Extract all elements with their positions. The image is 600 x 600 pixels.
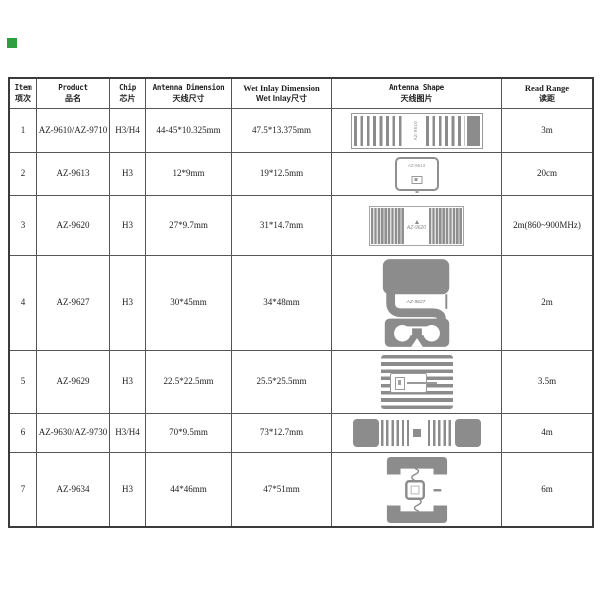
cell-antenna-shape: AZ-9620 [332,196,502,256]
dipole-chip-area [409,420,425,446]
cell-product: AZ-9634 [37,453,110,526]
product-spec-table: Item 项次 Product 品名 Chip 芯片 Antenna Dimen… [8,77,594,528]
cell-chip: H3 [110,196,146,256]
inlay-chip-area: AZ-9610 [405,116,426,146]
header-wet-inlay-dimension-en: Wet Inlay Dimension [243,83,320,94]
cell-item: 3 [10,196,37,256]
cell-wet-inlay-dimension: 47.5*13.375mm [232,109,332,153]
antenna-shape-small-rounded-tag: AZ-9613 [395,157,439,191]
dipole-left-pad [353,419,379,447]
cell-antenna-shape [332,351,502,414]
cell-read-range: 2m [502,256,592,351]
dipole-meander [381,420,453,446]
cell-read-range: 2m(860~900MHz) [502,196,592,256]
cell-product: AZ-9613 [37,153,110,196]
inlay-end-block [467,116,480,146]
header-wet-inlay-dimension: Wet Inlay Dimension Wet Inlay尺寸 [232,79,332,109]
chip-block [412,328,422,336]
header-item: Item 项次 [10,79,37,109]
header-read-range: Read Range 读距 [502,79,592,109]
chip-block [413,429,421,437]
antenna-shape-striped-dipole-inlay: AZ-9610 [351,113,483,149]
antenna-shape-dense-striped-rectangle: AZ-9620 [369,206,464,246]
striped-left [371,208,404,244]
chip-window [390,373,427,393]
chip-connector [407,382,437,384]
cell-antenna-shape: AZ-9627 [332,256,502,351]
header-product-en: Product [58,83,88,92]
header-antenna-shape: Antenna Shape 天线图片 [332,79,502,109]
header-chip-zh: 芯片 [120,94,136,104]
header-antenna-shape-zh: 天线图片 [401,94,433,104]
chip-outline [406,481,423,498]
tag-chip-icon [411,176,422,184]
cell-antenna-shape [332,453,502,526]
cell-item: 6 [10,414,37,453]
header-product: Product 品名 [37,79,110,109]
cell-antenna-dimension: 70*9.5mm [146,414,232,453]
green-marker [7,38,17,48]
inlay-left-bars [354,116,405,146]
striped-right [429,208,462,244]
header-read-range-en: Read Range [525,83,569,94]
cell-chip: H3/H4 [110,109,146,153]
cell-chip: H3 [110,351,146,414]
cell-product: AZ-9630/AZ-9730 [37,414,110,453]
triangle-mark-icon [415,220,419,224]
cell-read-range: 4m [502,414,592,453]
cell-wet-inlay-dimension: 31*14.7mm [232,196,332,256]
cell-product: AZ-9627 [37,256,110,351]
header-chip-en: Chip [119,83,136,92]
header-wet-inlay-dimension-zh: Wet Inlay尺寸 [256,94,307,104]
cell-read-range: 20cm [502,153,592,196]
cell-antenna-shape: AZ-9610 [332,109,502,153]
cell-item: 4 [10,256,37,351]
cell-wet-inlay-dimension: 47*51mm [232,453,332,526]
cell-product: AZ-9610/AZ-9710 [37,109,110,153]
cell-chip: H3 [110,453,146,526]
header-antenna-dimension-zh: 天线尺寸 [173,94,205,104]
header-product-zh: 品名 [65,94,81,104]
serpentine-label: AZ-9627 [405,299,425,305]
cell-wet-inlay-dimension: 25.5*25.5mm [232,351,332,414]
cell-wet-inlay-dimension: 19*12.5mm [232,153,332,196]
cell-chip: H3/H4 [110,414,146,453]
cell-item: 1 [10,109,37,153]
header-item-zh: 项次 [15,94,31,104]
header-antenna-shape-en: Antenna Shape [389,83,444,92]
header-chip: Chip 芯片 [110,79,146,109]
cell-antenna-dimension: 44*46mm [146,453,232,526]
header-read-range-zh: 读距 [539,94,555,104]
cell-antenna-dimension: 44-45*10.325mm [146,109,232,153]
cell-antenna-dimension: 22.5*22.5mm [146,351,232,414]
dipole-right-pad [455,419,481,447]
cell-read-range: 6m [502,453,592,526]
cell-antenna-dimension: 12*9mm [146,153,232,196]
cell-product: AZ-9620 [37,196,110,256]
cell-chip: H3 [110,153,146,196]
tag-label: AZ-9613 [397,163,437,169]
tag-notch [415,190,418,193]
antenna-shape-horizontal-striped-square [381,355,453,409]
cell-antenna-shape [332,414,502,453]
cell-read-range: 3.5m [502,351,592,414]
cell-read-range: 3m [502,109,592,153]
inlay-label: AZ-9610 [413,121,419,140]
cell-wet-inlay-dimension: 73*12.7mm [232,414,332,453]
cell-antenna-dimension: 27*9.7mm [146,196,232,256]
cell-antenna-shape: AZ-9613 [332,153,502,196]
header-antenna-dimension-en: Antenna Dimension [153,83,225,92]
cell-product: AZ-9629 [37,351,110,414]
antenna-shape-vertical-serpentine-tag: AZ-9627 [376,258,458,348]
cell-item: 5 [10,351,37,414]
cell-item: 7 [10,453,37,526]
inlay-right-bars [426,116,465,146]
striped-chip-area: AZ-9620 [404,208,429,244]
antenna-shape-square-bracket-tag [378,457,456,523]
cell-item: 2 [10,153,37,196]
cell-wet-inlay-dimension: 34*48mm [232,256,332,351]
header-antenna-dimension: Antenna Dimension 天线尺寸 [146,79,232,109]
striped-label: AZ-9620 [407,225,426,231]
cell-antenna-dimension: 30*45mm [146,256,232,351]
cell-chip: H3 [110,256,146,351]
chip-block [395,377,405,390]
page: Item 项次 Product 品名 Chip 芯片 Antenna Dimen… [0,0,600,600]
header-item-en: Item [15,83,32,92]
antenna-shape-long-meander-dipole [353,419,481,447]
